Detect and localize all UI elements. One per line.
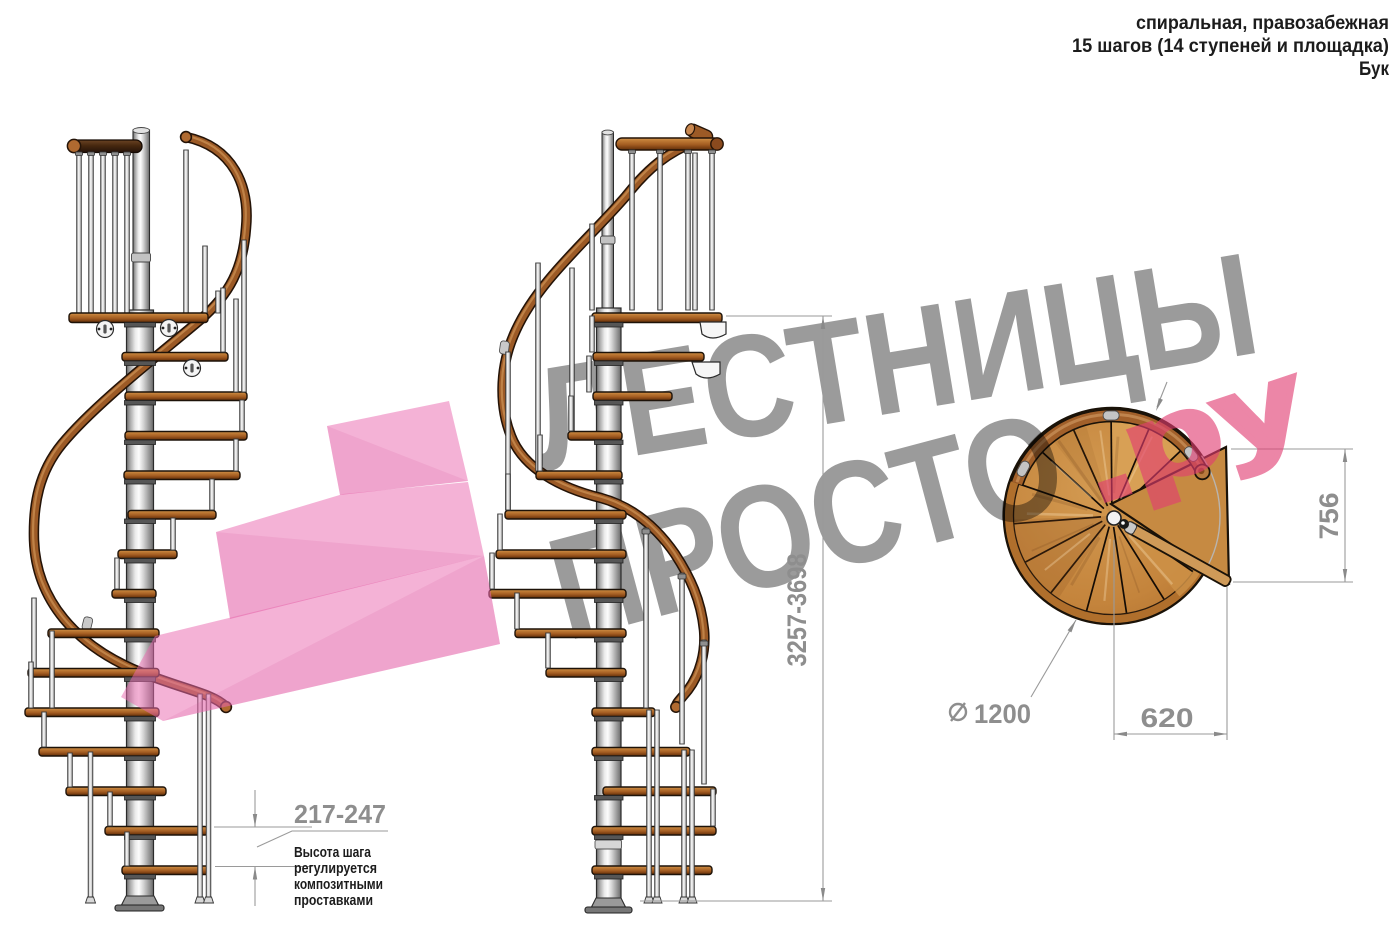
svg-text:Бук: Бук (1359, 58, 1389, 80)
svg-text:спиральная, правозабежная: спиральная, правозабежная (1136, 12, 1389, 34)
svg-text:3257-3698: 3257-3698 (782, 554, 812, 667)
svg-text:15 шагов (14 ступеней и площад: 15 шагов (14 ступеней и площадка) (1072, 35, 1389, 57)
svg-text:регулируется: регулируется (294, 861, 377, 877)
svg-text:композитными: композитными (294, 877, 383, 893)
svg-text:Высота шага: Высота шага (294, 845, 372, 861)
svg-text:1200: 1200 (974, 699, 1031, 729)
svg-text:проставками: проставками (294, 893, 373, 909)
svg-text:217-247: 217-247 (294, 799, 386, 829)
svg-text:620: 620 (1141, 703, 1194, 733)
svg-text:756: 756 (1314, 493, 1344, 540)
